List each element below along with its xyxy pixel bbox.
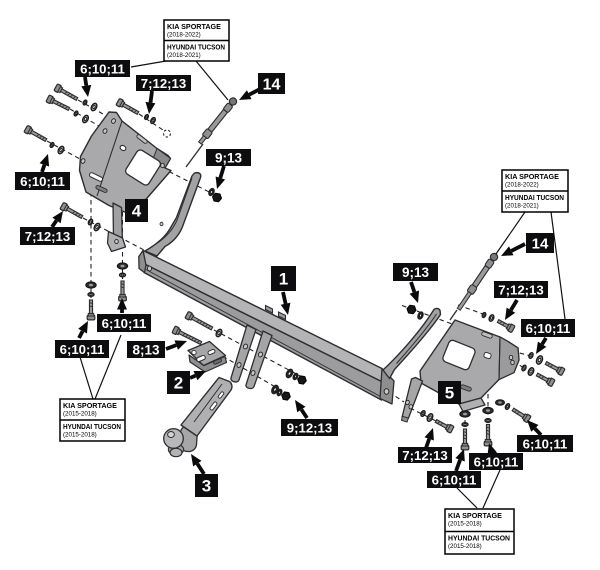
svg-text:1: 1 [279, 270, 288, 289]
svg-text:HYUNDAI TUCSON: HYUNDAI TUCSON [63, 422, 121, 431]
svg-text:14: 14 [532, 235, 549, 252]
svg-text:3: 3 [202, 477, 211, 496]
svg-text:(2018-2022): (2018-2022) [167, 32, 201, 39]
svg-text:(2018-2021): (2018-2021) [167, 52, 201, 59]
svg-text:6;10;11: 6;10;11 [432, 472, 477, 487]
svg-text:KIA SPORTAGE: KIA SPORTAGE [505, 172, 559, 181]
svg-text:(2015-2018): (2015-2018) [448, 521, 482, 528]
svg-text:6;10;11: 6;10;11 [474, 454, 519, 469]
svg-text:KIA SPORTAGE: KIA SPORTAGE [63, 401, 117, 410]
svg-text:14: 14 [263, 76, 281, 93]
svg-text:HYUNDAI TUCSON: HYUNDAI TUCSON [448, 534, 510, 543]
svg-text:7;12;13: 7;12;13 [141, 76, 186, 91]
svg-text:9;13: 9;13 [402, 265, 430, 280]
svg-text:HYUNDAI TUCSON: HYUNDAI TUCSON [505, 193, 564, 202]
svg-text:(2015-2018): (2015-2018) [448, 543, 482, 550]
svg-text:4: 4 [132, 202, 142, 221]
svg-text:7;12;13: 7;12;13 [498, 282, 543, 297]
svg-text:7;12;13: 7;12;13 [402, 448, 447, 463]
svg-text:7;12;13: 7;12;13 [25, 229, 70, 244]
svg-text:8;13: 8;13 [132, 342, 160, 357]
svg-text:9;12;13: 9;12;13 [287, 420, 332, 435]
svg-text:HYUNDAI TUCSON: HYUNDAI TUCSON [167, 43, 225, 52]
svg-text:9;13: 9;13 [215, 150, 243, 165]
svg-text:6;10;11: 6;10;11 [526, 321, 571, 336]
svg-text:(2015-2018): (2015-2018) [63, 411, 97, 418]
svg-text:6;10;11: 6;10;11 [60, 342, 105, 357]
svg-text:5: 5 [445, 384, 454, 403]
svg-text:6;10;11: 6;10;11 [80, 61, 125, 76]
svg-text:6;10;11: 6;10;11 [20, 174, 65, 189]
svg-text:(2015-2018): (2015-2018) [63, 432, 97, 439]
svg-text:KIA SPORTAGE: KIA SPORTAGE [167, 22, 221, 31]
svg-text:2: 2 [174, 374, 183, 393]
svg-text:(2018-2021): (2018-2021) [505, 203, 539, 210]
svg-text:6;10;11: 6;10;11 [102, 316, 147, 331]
svg-text:6;10;11: 6;10;11 [523, 436, 568, 451]
svg-text:(2018-2022): (2018-2022) [505, 182, 539, 189]
svg-text:KIA SPORTAGE: KIA SPORTAGE [448, 511, 502, 520]
